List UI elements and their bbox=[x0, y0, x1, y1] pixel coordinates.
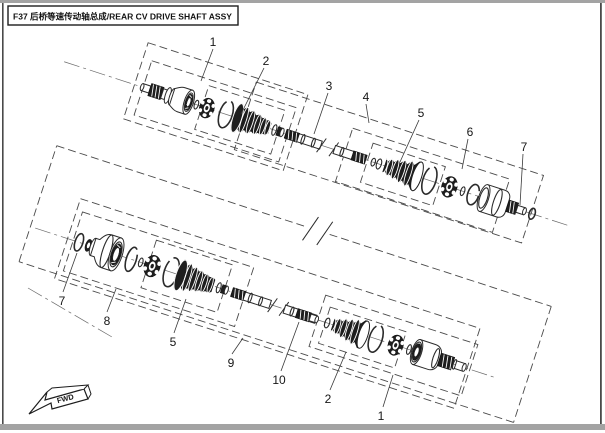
page-title: F37 后桥等速传动轴总成/REAR CV DRIVE SHAFT ASSY bbox=[13, 11, 232, 22]
section-line bbox=[28, 288, 112, 337]
callout-number: 5 bbox=[170, 335, 177, 349]
stub-shaft bbox=[139, 80, 168, 100]
outer-cv-joint-housing bbox=[408, 338, 470, 380]
callout-number: 2 bbox=[325, 392, 332, 406]
frame-right-edge bbox=[600, 3, 602, 424]
callout-number: 7 bbox=[521, 140, 528, 154]
callout-number: 2 bbox=[263, 54, 270, 68]
break-mark bbox=[303, 215, 333, 248]
frame-top-edge bbox=[0, 0, 605, 3]
lower-shaft-assembly bbox=[17, 133, 555, 427]
callout-number: 7 bbox=[59, 294, 66, 308]
tripod-bearing bbox=[385, 333, 406, 357]
tripod-bearing bbox=[141, 253, 163, 279]
callout-number: 1 bbox=[378, 409, 385, 423]
dashed-callout-box-1-outer bbox=[123, 43, 307, 171]
frame-bottom-edge bbox=[0, 424, 605, 430]
callout-number: 9 bbox=[228, 356, 235, 370]
callout-number: 10 bbox=[272, 373, 286, 387]
dashed-callout-box-1-inner bbox=[134, 61, 296, 162]
cv-boot bbox=[171, 259, 218, 301]
cv-boot bbox=[326, 311, 372, 350]
callout-number: 1 bbox=[210, 35, 217, 49]
callout-number: 4 bbox=[363, 90, 370, 104]
callout-number: 5 bbox=[418, 106, 425, 120]
frame-left-edge bbox=[2, 3, 4, 424]
cv-boot bbox=[228, 102, 274, 142]
callout-number: 8 bbox=[104, 314, 111, 328]
callout-number: 6 bbox=[467, 125, 474, 139]
callout-number: 3 bbox=[326, 79, 333, 93]
fwd-arrow: FWD bbox=[29, 385, 91, 414]
upper-shaft-assembly bbox=[53, 20, 585, 261]
tripod-bearing bbox=[197, 96, 217, 120]
parts-diagram: F37 后桥等速传动轴总成/REAR CV DRIVE SHAFT ASSY bbox=[0, 0, 605, 433]
outer-cv-joint-housing bbox=[161, 83, 197, 116]
dashed-callout-box-outer-large bbox=[19, 133, 555, 422]
inner-joint-cup bbox=[474, 183, 530, 225]
circlip-small bbox=[72, 233, 85, 253]
inner-joint-cup bbox=[85, 230, 127, 273]
